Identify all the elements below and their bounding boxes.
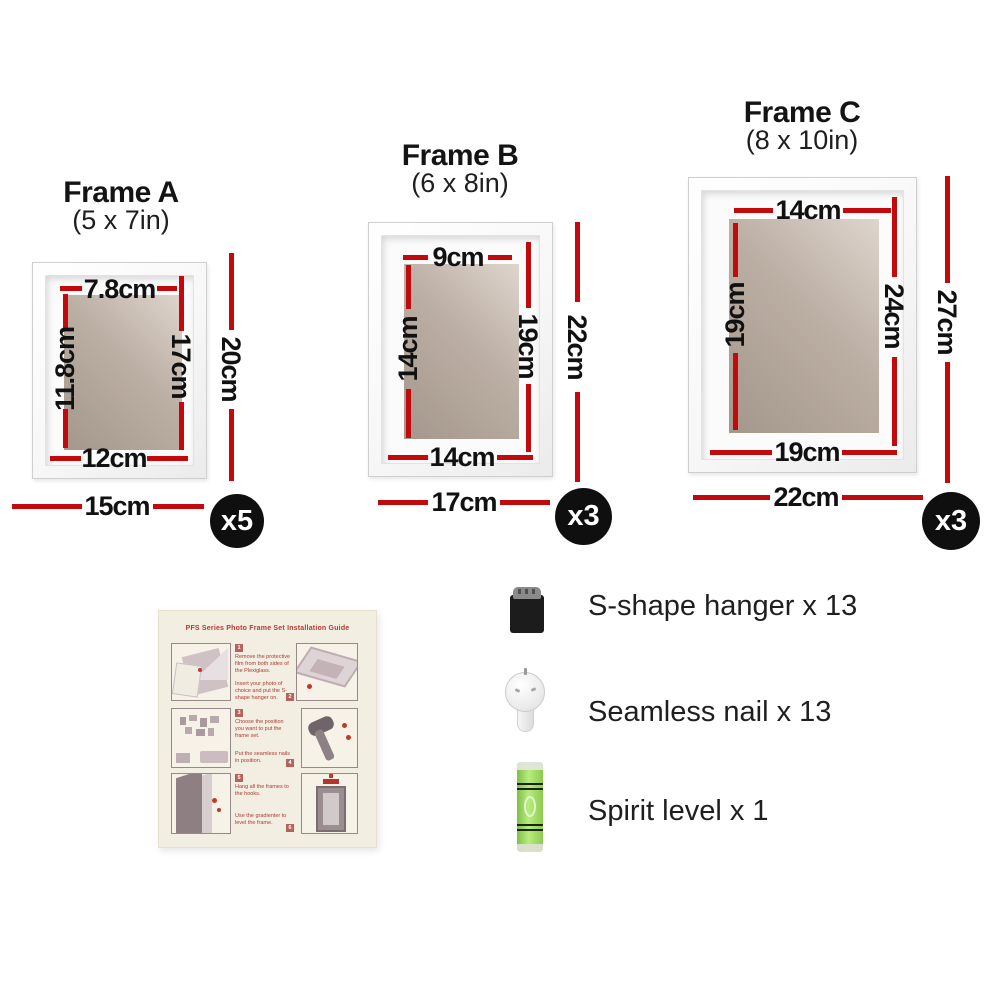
dimension-line	[63, 409, 68, 448]
s-shape-hanger-icon	[509, 587, 545, 633]
hardware-item-label: Seamless nail x 13	[588, 696, 831, 728]
guide-step-caption: Insert your photo of choice and put the …	[235, 681, 289, 702]
dimension-label: 12cm	[74, 441, 154, 475]
dimension-line	[179, 402, 184, 450]
guide-step-2-illustration	[296, 643, 358, 701]
frame-a-subtitle: (5 x 7in)	[21, 207, 221, 234]
dimension-line	[12, 504, 82, 509]
dimension-label: 14cm	[763, 193, 853, 227]
dimension-label: 17cm	[419, 485, 509, 519]
frame-b-title: Frame B	[360, 141, 560, 171]
dimension-label: 27cm	[930, 272, 964, 372]
dimension-line	[403, 255, 428, 260]
dimension-line	[945, 362, 950, 483]
dimension-line	[488, 255, 512, 260]
dimension-label: 15cm	[77, 489, 157, 523]
dimension-line	[733, 353, 738, 430]
dimension-line	[157, 286, 177, 291]
frame-c-quantity-badge: x3	[922, 492, 980, 550]
seamless-nail-icon	[505, 670, 545, 736]
frame-b-quantity-badge: x3	[555, 488, 612, 545]
guide-step-caption: Choose the position you want to put the …	[235, 719, 291, 740]
dimension-label: 17cm	[164, 321, 198, 411]
guide-step-number: 6	[286, 824, 294, 832]
frame-c-subtitle: (8 x 10in)	[702, 127, 902, 154]
guide-step-caption: Hang all the frames to the hooks.	[235, 784, 291, 798]
frame-c-title: Frame C	[702, 98, 902, 128]
installation-guide: PFS Series Photo Frame Set Installation …	[158, 610, 377, 848]
dimension-label: 19cm	[511, 296, 545, 396]
dimension-line	[229, 253, 234, 330]
product-infographic: Frame A (5 x 7in) 7.8cm 11.8cm 17cm 12cm	[0, 0, 1000, 1000]
guide-step-3-illustration	[171, 708, 231, 768]
hardware-item-label: Spirit level x 1	[588, 795, 769, 827]
dimension-label: 14cm	[391, 299, 425, 399]
dimension-line	[892, 357, 897, 446]
dimension-label: 20cm	[214, 324, 248, 414]
dimension-label: 19cm	[762, 435, 852, 469]
frame-a-title: Frame A	[21, 178, 221, 208]
guide-step-5-illustration	[171, 773, 231, 834]
dimension-line	[229, 409, 234, 481]
frame-b-subtitle: (6 x 8in)	[360, 170, 560, 197]
guide-step-caption: Remove the protective film from both sid…	[235, 654, 293, 675]
dimension-line	[843, 208, 891, 213]
guide-step-number: 1	[235, 644, 243, 652]
guide-step-caption: Use the gradienter to level the frame.	[235, 813, 291, 827]
dimension-line	[842, 450, 897, 455]
dimension-line	[153, 504, 204, 509]
dimension-label: 22cm	[761, 480, 851, 514]
dimension-label: 19cm	[718, 265, 752, 365]
dimension-line	[945, 176, 950, 283]
guide-step-number: 2	[286, 693, 294, 701]
guide-step-caption: Put the seamless nails in position.	[235, 751, 291, 765]
guide-step-number: 4	[286, 759, 294, 767]
guide-step-number: 3	[235, 709, 243, 717]
dimension-label: 14cm	[417, 440, 507, 474]
dimension-line	[406, 389, 411, 438]
guide-step-1-illustration	[171, 643, 231, 701]
guide-step-4-illustration	[301, 708, 358, 768]
dimension-line	[575, 222, 580, 302]
dimension-line	[575, 392, 580, 482]
dimension-label: 7.8cm	[79, 272, 160, 306]
dimension-line	[892, 197, 897, 277]
dimension-line	[497, 455, 533, 460]
dimension-line	[526, 384, 531, 452]
guide-title: PFS Series Photo Frame Set Installation …	[159, 625, 376, 632]
guide-step-number: 5	[235, 774, 243, 782]
dimension-line	[500, 500, 550, 505]
frame-a-quantity-badge: x5	[210, 494, 264, 548]
dimension-line	[842, 495, 923, 500]
guide-step-6-illustration	[301, 773, 358, 834]
dimension-line	[147, 456, 188, 461]
spirit-level-icon	[517, 762, 543, 852]
dimension-label: 9cm	[428, 240, 488, 274]
dimension-label: 22cm	[560, 297, 594, 397]
hardware-item-label: S-shape hanger x 13	[588, 590, 857, 622]
dimension-label: 24cm	[877, 266, 911, 366]
dimension-line	[693, 495, 770, 500]
